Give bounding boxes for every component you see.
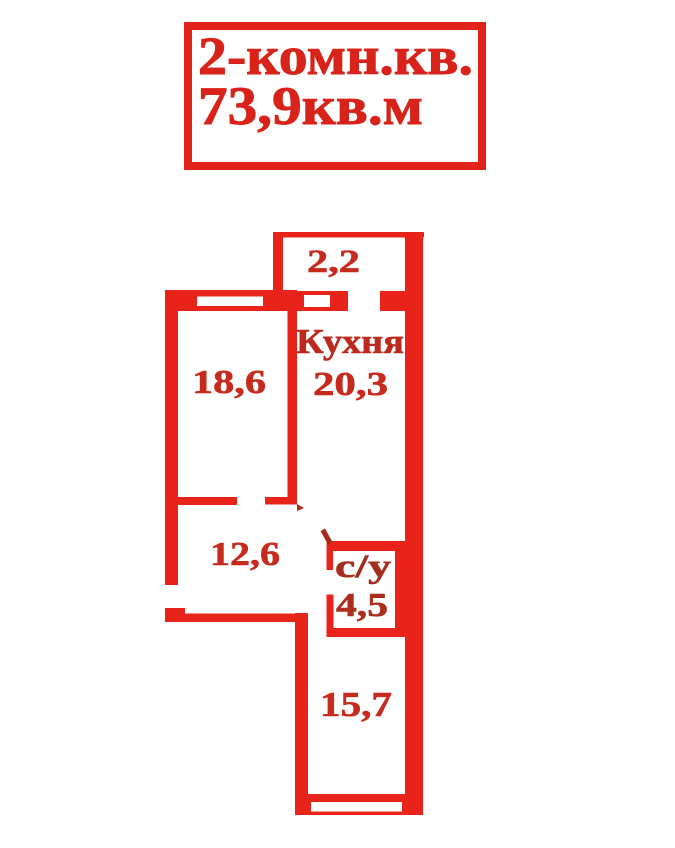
svg-text:18,6: 18,6	[192, 364, 266, 401]
svg-text:15,7: 15,7	[320, 685, 392, 724]
svg-text:с/у: с/у	[335, 549, 392, 585]
svg-text:73,9кв.м: 73,9кв.м	[198, 76, 423, 136]
svg-text:2,2: 2,2	[307, 244, 360, 280]
svg-text:4,5: 4,5	[336, 587, 388, 624]
svg-text:20,3: 20,3	[313, 366, 388, 403]
svg-text:12,6: 12,6	[210, 536, 280, 573]
svg-text:Кухня: Кухня	[296, 322, 404, 361]
